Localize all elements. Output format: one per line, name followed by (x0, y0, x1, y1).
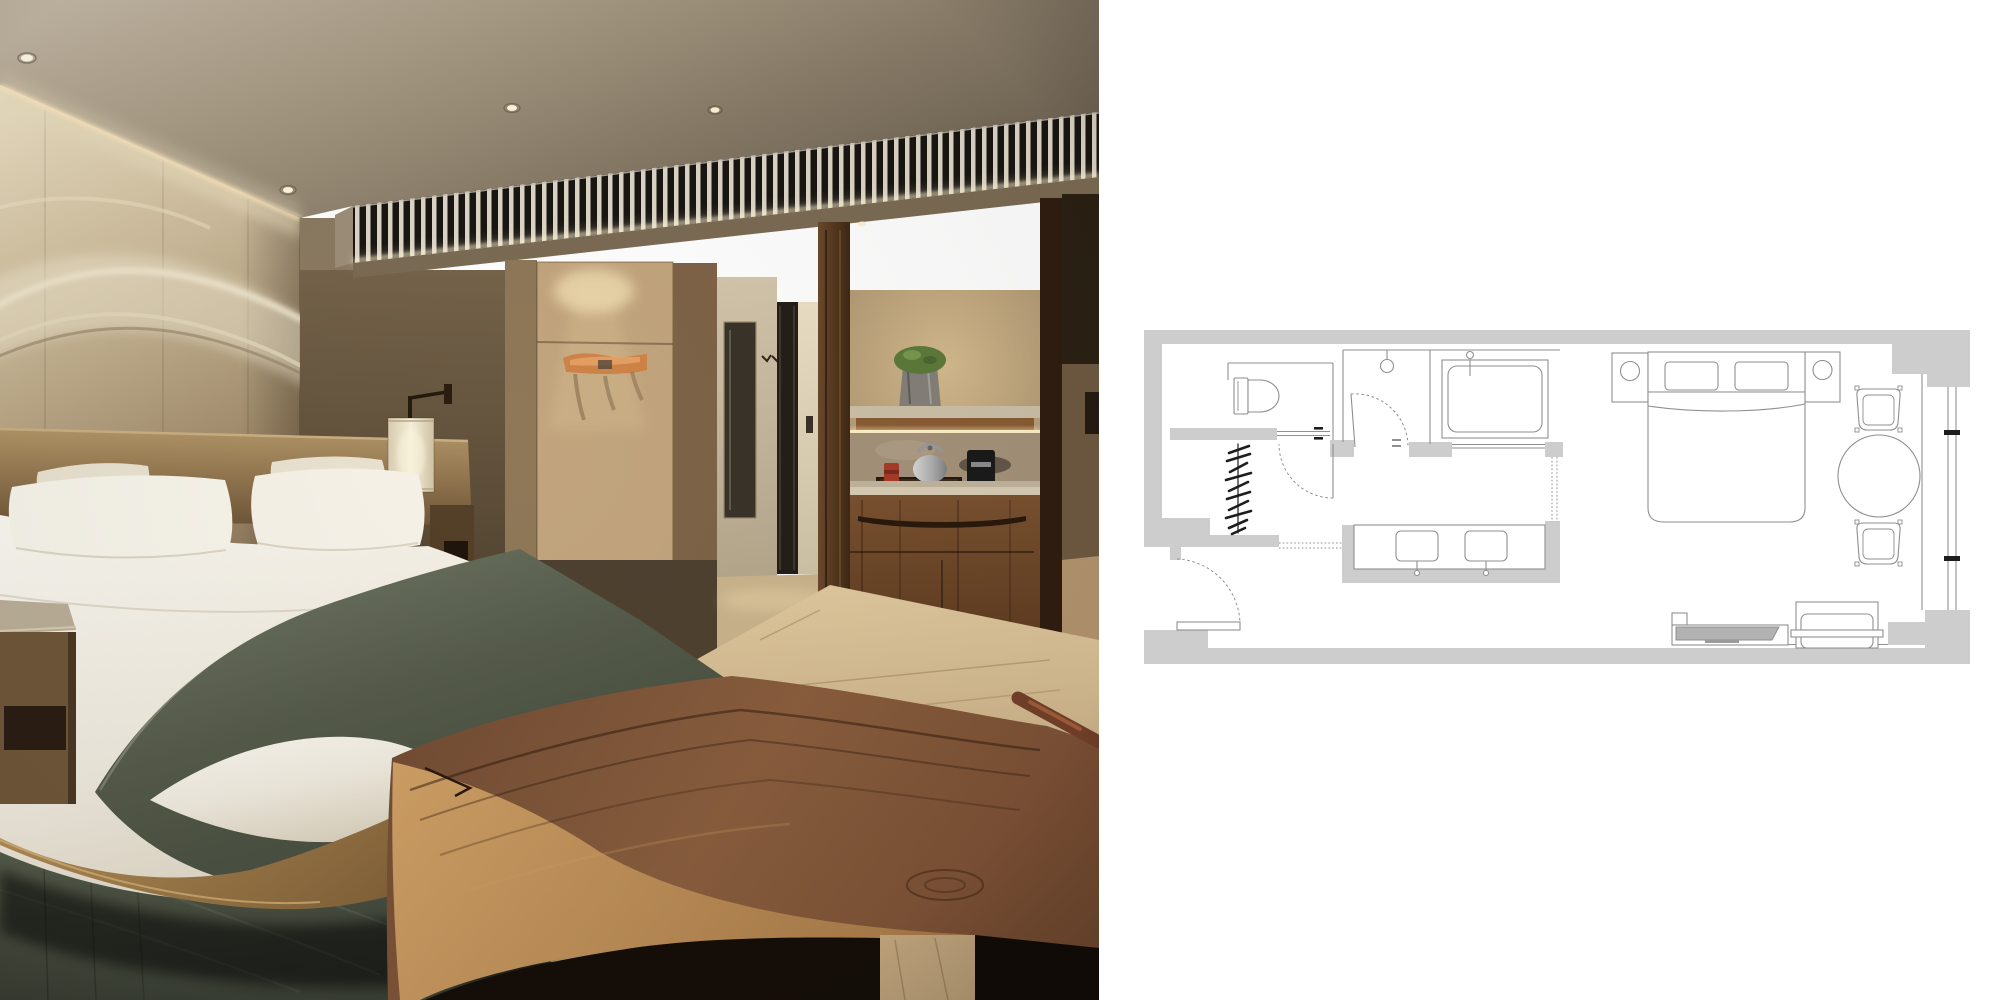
desk-symbol (1791, 602, 1883, 648)
shower-head-symbol (1381, 350, 1394, 373)
pillow-symbol (1665, 362, 1718, 390)
page (0, 0, 2000, 1000)
round-table-symbol (1838, 435, 1920, 517)
dining-chair-top (1855, 386, 1902, 432)
hall-door-swing (1279, 444, 1333, 498)
sliding-door (1277, 432, 1330, 436)
floor-plan (1130, 322, 1970, 667)
toilet-symbol (1234, 378, 1330, 436)
king-bed-symbol (1612, 352, 1840, 522)
hotel-room-photo (0, 0, 1099, 1000)
pillow-symbol (1735, 362, 1788, 390)
dining-chair-bottom (1855, 520, 1902, 566)
bathtub-symbol (1442, 352, 1548, 439)
entry-door-swing (1177, 559, 1240, 630)
table-lamp-symbol (1813, 361, 1832, 380)
television-symbol (1676, 627, 1779, 640)
door-handles (1314, 427, 1323, 440)
tv-console-symbol (1672, 613, 1788, 645)
vignette (0, 0, 1099, 1000)
closet-hanger-hatching (1226, 444, 1251, 534)
table-lamp-symbol (1621, 362, 1640, 381)
double-sink-vanity (1354, 525, 1545, 576)
window-mullions (1922, 374, 1956, 610)
bathroom-door-swing (1351, 394, 1408, 447)
window-frame-ticks (1944, 430, 1960, 561)
